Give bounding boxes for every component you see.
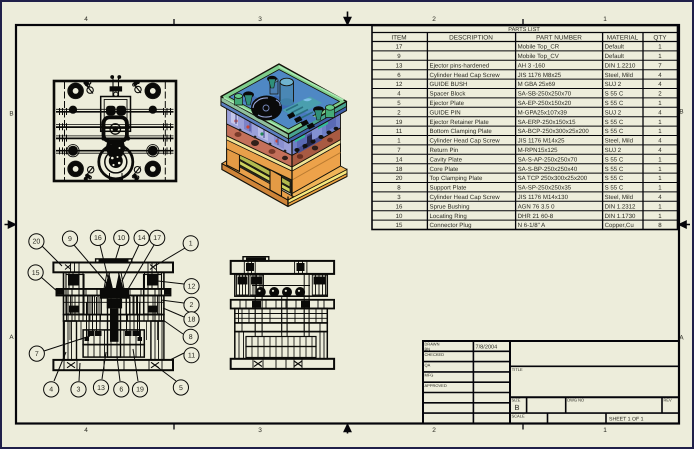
svg-text:18: 18 — [396, 166, 403, 173]
svg-text:BN: BN — [425, 346, 431, 351]
svg-text:B: B — [514, 403, 519, 412]
svg-text:SUJ 2: SUJ 2 — [605, 147, 622, 154]
svg-text:AGN 76 3.5 0: AGN 76 3.5 0 — [518, 203, 556, 210]
svg-text:10: 10 — [117, 235, 125, 242]
svg-text:SA-ERP-250x150x15: SA-ERP-250x150x15 — [518, 119, 577, 126]
svg-text:DESCRIPTION: DESCRIPTION — [449, 35, 493, 42]
svg-text:JIS 1176 M14x130: JIS 1176 M14x130 — [518, 194, 569, 201]
svg-text:15: 15 — [396, 222, 403, 229]
svg-text:4: 4 — [49, 387, 53, 394]
svg-text:Spacer Block: Spacer Block — [430, 91, 467, 98]
svg-text:19: 19 — [136, 387, 144, 394]
svg-text:SCALE: SCALE — [512, 413, 525, 418]
svg-text:Ejector Plate: Ejector Plate — [430, 100, 465, 107]
svg-text:M-RPN15x125: M-RPN15x125 — [518, 147, 559, 154]
svg-text:3: 3 — [258, 427, 262, 434]
svg-text:CHECKED: CHECKED — [425, 352, 445, 357]
svg-text:17: 17 — [396, 44, 403, 51]
svg-text:REV: REV — [664, 398, 673, 403]
svg-text:S 55 C: S 55 C — [605, 166, 624, 173]
svg-text:2: 2 — [432, 427, 436, 434]
svg-text:15: 15 — [32, 270, 40, 277]
svg-text:GUIDE PIN: GUIDE PIN — [430, 109, 461, 116]
svg-text:SIZE: SIZE — [512, 398, 521, 403]
svg-text:Cylinder Head Cap Screw: Cylinder Head Cap Screw — [430, 194, 501, 201]
svg-text:DIN 1.1730: DIN 1.1730 — [605, 213, 636, 220]
svg-text:S 55 C: S 55 C — [605, 175, 624, 182]
svg-text:B: B — [9, 111, 13, 118]
svg-text:SUJ 2: SUJ 2 — [605, 109, 622, 116]
svg-text:Default: Default — [605, 44, 625, 51]
svg-text:S 55 C: S 55 C — [605, 185, 624, 192]
svg-text:Sprue Bushing: Sprue Bushing — [430, 203, 470, 210]
svg-text:APPROVED: APPROVED — [425, 383, 447, 388]
svg-text:12: 12 — [396, 81, 403, 88]
svg-text:20: 20 — [33, 239, 41, 246]
svg-text:Cylinder Head Cap Screw: Cylinder Head Cap Screw — [430, 72, 501, 79]
svg-text:M-GPA25x107x39: M-GPA25x107x39 — [518, 109, 568, 116]
svg-text:PARTS LIST: PARTS LIST — [508, 27, 540, 33]
svg-text:JIS 1176 M8x25: JIS 1176 M8x25 — [518, 72, 562, 79]
svg-text:8: 8 — [189, 334, 193, 341]
svg-text:Cavity Plate: Cavity Plate — [430, 156, 463, 163]
svg-text:Steel, Mild: Steel, Mild — [605, 72, 633, 79]
svg-text:QA: QA — [425, 362, 431, 367]
svg-text:DIN 1.2312: DIN 1.2312 — [605, 203, 636, 210]
svg-text:S 55 C: S 55 C — [605, 156, 624, 163]
svg-text:2: 2 — [190, 302, 194, 309]
svg-text:Bottom Clamping Plate: Bottom Clamping Plate — [430, 128, 493, 135]
svg-text:MATERIAL: MATERIAL — [607, 35, 639, 42]
svg-text:11: 11 — [396, 128, 403, 135]
svg-text:SHEET 1 OF 1: SHEET 1 OF 1 — [609, 417, 644, 423]
svg-text:16: 16 — [396, 203, 403, 210]
svg-text:Cylinder Head Cap Screw: Cylinder Head Cap Screw — [430, 138, 501, 145]
svg-text:TITLE: TITLE — [512, 367, 523, 372]
svg-text:7: 7 — [35, 351, 39, 358]
svg-text:SA-S-AP-250x250x70: SA-S-AP-250x250x70 — [518, 156, 578, 163]
svg-text:12: 12 — [188, 284, 196, 291]
svg-text:3: 3 — [77, 387, 81, 394]
svg-text:4: 4 — [84, 427, 88, 434]
svg-text:S 55 C: S 55 C — [605, 100, 624, 107]
svg-text:S 55 C: S 55 C — [605, 128, 624, 135]
svg-text:11: 11 — [188, 353, 195, 360]
svg-text:PART NUMBER: PART NUMBER — [536, 35, 582, 42]
svg-text:Mobile Top_CV: Mobile Top_CV — [518, 53, 560, 60]
svg-text:B: B — [679, 109, 683, 116]
svg-text:SA-SB-250x250x70: SA-SB-250x250x70 — [518, 91, 572, 98]
svg-text:DWG NO: DWG NO — [567, 398, 584, 403]
svg-text:Mobile Top_CR: Mobile Top_CR — [518, 44, 560, 51]
svg-text:9: 9 — [68, 236, 72, 243]
svg-text:14: 14 — [396, 156, 403, 163]
svg-text:Connector Plug: Connector Plug — [430, 222, 472, 229]
svg-text:Ejector pins-hardened: Ejector pins-hardened — [430, 62, 490, 69]
svg-text:20: 20 — [396, 175, 403, 182]
svg-text:DHR 21 60-8: DHR 21 60-8 — [518, 213, 554, 220]
svg-text:1: 1 — [189, 241, 193, 248]
svg-text:13: 13 — [97, 385, 105, 392]
svg-text:SA-S-BP-250x250x40: SA-S-BP-250x250x40 — [518, 166, 578, 173]
svg-text:SA-BCP-250x300x25x200: SA-BCP-250x300x25x200 — [518, 128, 590, 135]
svg-text:1: 1 — [603, 427, 607, 434]
svg-text:GUIDE BUSH: GUIDE BUSH — [430, 81, 468, 88]
svg-text:Steel, Mild: Steel, Mild — [605, 138, 633, 145]
svg-text:S 55 C: S 55 C — [605, 91, 624, 98]
svg-text:Top Clamping Plate: Top Clamping Plate — [430, 175, 483, 182]
svg-text:3: 3 — [258, 16, 262, 23]
svg-text:7/8/2004: 7/8/2004 — [476, 344, 498, 351]
svg-text:JIS 1176 M14x25: JIS 1176 M14x25 — [518, 138, 566, 145]
svg-text:5: 5 — [179, 385, 183, 392]
svg-text:M GBA 25x69: M GBA 25x69 — [518, 81, 556, 88]
svg-text:Support Plate: Support Plate — [430, 185, 468, 192]
svg-text:Return Pin: Return Pin — [430, 147, 459, 154]
svg-text:18: 18 — [188, 317, 196, 324]
svg-text:Default: Default — [605, 53, 625, 60]
svg-text:19: 19 — [396, 119, 403, 126]
svg-text:ITEM: ITEM — [391, 35, 406, 42]
svg-text:Copper,Cu: Copper,Cu — [605, 222, 634, 229]
svg-text:Locating Ring: Locating Ring — [430, 213, 467, 220]
svg-text:N 6-1/8" A: N 6-1/8" A — [518, 222, 547, 229]
svg-text:2: 2 — [432, 16, 436, 23]
svg-text:AH 3 -160: AH 3 -160 — [518, 62, 546, 69]
svg-text:QTY: QTY — [653, 35, 667, 42]
svg-text:SA-EP-250x150x20: SA-EP-250x150x20 — [518, 100, 572, 107]
svg-text:Core Plate: Core Plate — [430, 166, 459, 173]
svg-text:4: 4 — [84, 16, 88, 23]
svg-text:16: 16 — [94, 235, 102, 242]
svg-text:SA TCP 250x300x25x200: SA TCP 250x300x25x200 — [518, 175, 588, 182]
svg-text:14: 14 — [138, 235, 146, 242]
svg-text:Ejector Retainer Plate: Ejector Retainer Plate — [430, 119, 490, 126]
svg-text:1: 1 — [603, 16, 607, 23]
svg-text:6: 6 — [119, 387, 123, 394]
svg-text:13: 13 — [396, 62, 403, 69]
svg-text:SA-SP-250x250x35: SA-SP-250x250x35 — [518, 185, 572, 192]
svg-text:S 55 C: S 55 C — [605, 119, 624, 126]
svg-text:SUJ 2: SUJ 2 — [605, 81, 622, 88]
svg-text:10: 10 — [396, 213, 403, 220]
svg-text:17: 17 — [153, 235, 161, 242]
svg-text:MFG: MFG — [425, 373, 434, 378]
svg-text:DIN 1.2210: DIN 1.2210 — [605, 62, 636, 69]
svg-text:Steel, Mild: Steel, Mild — [605, 194, 633, 201]
